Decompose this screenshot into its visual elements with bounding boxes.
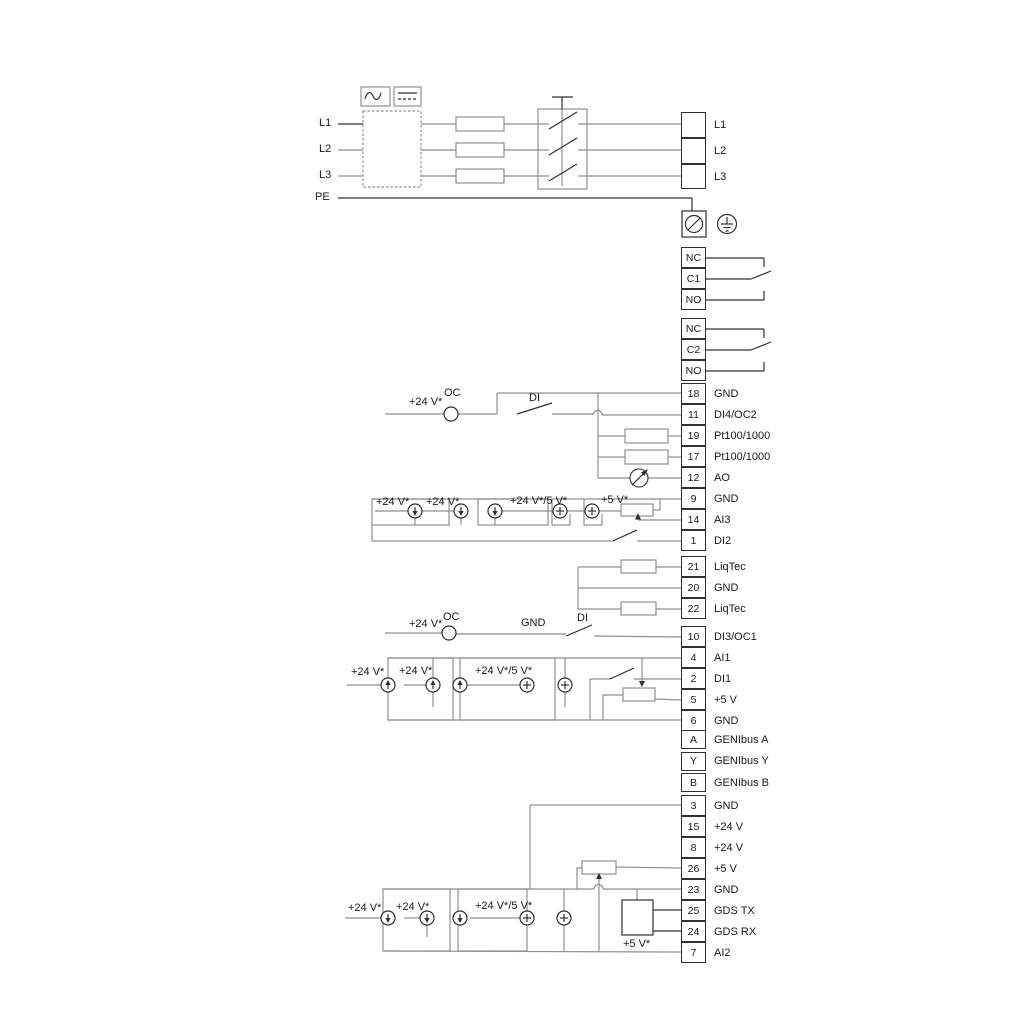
terminal-box: [681, 138, 706, 164]
phase-label: L3: [319, 169, 331, 182]
terminal-box: 15: [681, 816, 706, 837]
terminal-label: GDS RX: [714, 921, 756, 942]
relay-terminal-box: NC: [681, 247, 706, 268]
phase-label: L1: [319, 117, 331, 130]
terminal-box: 14: [681, 509, 706, 530]
oc-node-icon: [444, 407, 458, 421]
switch-blade: [549, 138, 577, 155]
terminal-box: 24: [681, 921, 706, 942]
phase-label: L2: [319, 143, 331, 156]
relay-terminal-box: C1: [681, 268, 706, 289]
fuse-symbol: [456, 117, 504, 131]
switch-blade: [549, 164, 577, 181]
terminal-label: GENIbus Y: [714, 752, 769, 771]
current-source-icon: [488, 504, 502, 518]
terminal-box: 22: [681, 598, 706, 619]
terminal-label: DI1: [714, 668, 731, 689]
plus24v-5v-label: +24 V*/5 V*: [475, 900, 532, 913]
current-source-icon: [408, 504, 422, 518]
resistor-symbol: [621, 560, 656, 573]
gds-module-box: [622, 900, 653, 935]
terminal-label: DI4/OC2: [714, 404, 757, 425]
di-label: DI: [529, 392, 540, 405]
current-source-icon: [557, 911, 571, 925]
terminal-label: DI3/OC1: [714, 626, 757, 647]
oc-label: OC: [443, 611, 460, 624]
terminal-label: GND: [714, 488, 738, 509]
terminal-label: +5 V: [714, 689, 737, 710]
terminal-label: +24 V: [714, 837, 743, 858]
plus24v-label: +24 V*: [399, 665, 432, 678]
resistor-symbol: [625, 429, 668, 443]
terminal-label: GENIbus A: [714, 730, 768, 749]
terminal-label: LiqTec: [714, 598, 746, 619]
relay-terminal-box: NO: [681, 360, 706, 381]
terminal-box: 21: [681, 556, 706, 577]
plus24v-label: +24 V*: [351, 666, 384, 679]
terminal-label: AI1: [714, 647, 731, 668]
plus24v-label: +24 V*: [409, 618, 442, 631]
terminal-box: 2: [681, 668, 706, 689]
terminal-box: 6: [681, 710, 706, 731]
terminal-box: 18: [681, 383, 706, 404]
terminal-box: 3: [681, 795, 706, 816]
plus24v-label: +24 V*: [409, 396, 442, 409]
current-source-icon: [585, 504, 599, 518]
terminal-label: DI2: [714, 530, 731, 551]
filter-box: [363, 111, 421, 187]
relay-contact: [706, 258, 771, 371]
terminal-box: [681, 164, 706, 189]
di-contact: [566, 625, 592, 636]
terminal-box: 19: [681, 425, 706, 446]
current-source-icon: [520, 678, 534, 692]
terminal-box: 12: [681, 467, 706, 488]
fuse-symbol: [456, 143, 504, 157]
ac-sine-icon: [365, 93, 381, 100]
relay-terminal-box: C2: [681, 339, 706, 360]
terminal-label: AI3: [714, 509, 731, 530]
di-contact: [613, 530, 637, 541]
terminal-label: Pt100/1000: [714, 425, 770, 446]
terminal-box: 1: [681, 530, 706, 551]
current-source-icon: [453, 911, 467, 925]
terminal-label: GND: [714, 383, 738, 404]
phase-label: PE: [315, 191, 330, 204]
plus24v-label: +24 V*: [348, 902, 381, 915]
terminal-box: 23: [681, 879, 706, 900]
potentiometer-symbol: [582, 861, 616, 874]
current-source-icon: [381, 678, 395, 692]
plus24v-label: +24 V*: [396, 901, 429, 914]
terminal-label: +24 V: [714, 816, 743, 837]
switch-blade: [549, 112, 577, 129]
current-source-icon: [453, 678, 467, 692]
terminal-box: 8: [681, 837, 706, 858]
resistor-symbol: [625, 450, 668, 464]
terminal-label: GND: [714, 795, 738, 816]
wiring-diagram: L1L2L3PEL1L2L3NCC1NONCC2NO18GND11DI4/OC2…: [0, 0, 1024, 1024]
terminal-box: 11: [681, 404, 706, 425]
terminal-box: 5: [681, 689, 706, 710]
plus5v-label: +5 V*: [623, 938, 650, 951]
terminal-box: 7: [681, 942, 706, 963]
relay-terminal-box: NC: [681, 318, 706, 339]
terminal-box: 10: [681, 626, 706, 647]
fuse-symbol: [456, 169, 504, 183]
schematic-wires: [0, 0, 1024, 1024]
terminal-box: Y: [681, 752, 706, 771]
terminal-box: 26: [681, 858, 706, 879]
dc-line-icon: [394, 87, 421, 106]
plus24v-5v-label: +24 V*/5 V*: [510, 495, 567, 508]
current-source-icon: [381, 911, 395, 925]
terminal-box: [681, 112, 706, 138]
terminal-label: L2: [714, 138, 726, 164]
terminal-box: 4: [681, 647, 706, 668]
plus5v-label: +5 V*: [601, 494, 628, 507]
terminal-box: A: [681, 730, 706, 749]
terminal-box: 25: [681, 900, 706, 921]
resistor-symbol: [621, 602, 656, 615]
terminal-box: 9: [681, 488, 706, 509]
terminal-box: B: [681, 773, 706, 792]
wiper-arrowhead: [639, 681, 645, 687]
terminal-label: GND: [714, 710, 738, 731]
terminal-label: L3: [714, 164, 726, 189]
terminal-label: GENIbus B: [714, 773, 769, 792]
di-label: DI: [577, 612, 588, 625]
oc-label: OC: [444, 387, 461, 400]
terminal-label: Pt100/1000: [714, 446, 770, 467]
current-source-icon: [520, 911, 534, 925]
terminal-box: 17: [681, 446, 706, 467]
current-source-icon: [558, 678, 572, 692]
terminal-label: AO: [714, 467, 730, 488]
plus24v-label: +24 V*: [376, 496, 409, 509]
terminal-label: +5 V: [714, 858, 737, 879]
terminal-label: L1: [714, 112, 726, 138]
terminal-label: AI2: [714, 942, 731, 963]
plus24v-5v-label: +24 V*/5 V*: [475, 665, 532, 678]
di-contact: [610, 668, 634, 679]
potentiometer-symbol: [623, 688, 655, 701]
terminal-label: GND: [714, 879, 738, 900]
plus24v-label: +24 V*: [426, 496, 459, 509]
terminal-label: LiqTec: [714, 556, 746, 577]
gnd-label: GND: [521, 617, 545, 630]
oc-node-icon: [442, 626, 456, 640]
terminal-box: 20: [681, 577, 706, 598]
terminal-label: GND: [714, 577, 738, 598]
terminal-label: GDS TX: [714, 900, 755, 921]
current-source-icon: [426, 678, 440, 692]
option-box: [458, 889, 527, 951]
relay-terminal-box: NO: [681, 289, 706, 310]
